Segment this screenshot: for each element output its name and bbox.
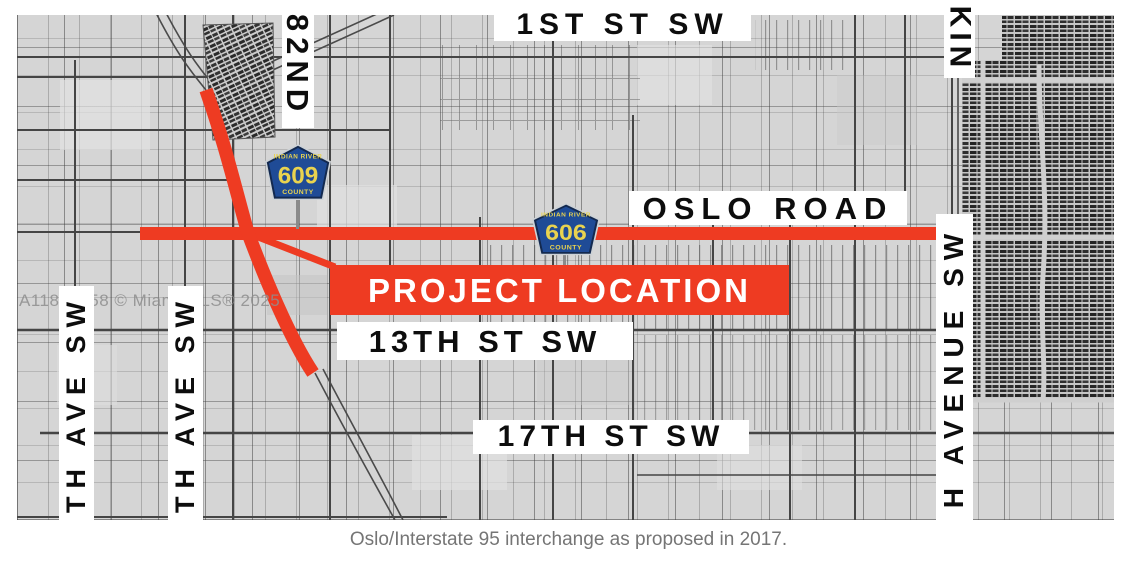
- project-location-callout: PROJECT LOCATION: [330, 265, 789, 315]
- street-label-text: OSLO ROAD: [643, 193, 894, 224]
- county-pentagon-icon: INDIAN RIVER 606 COUNTY: [530, 202, 602, 256]
- shield-bottom-text: COUNTY: [282, 189, 314, 196]
- street-label-text: TH AVE SW: [172, 294, 199, 513]
- street-label-th-ave-sw-east: TH AVE SW: [168, 286, 203, 520]
- street-label-17th-st-sw: 17TH ST SW: [473, 420, 749, 454]
- shield-top-text: INDIAN RIVER: [541, 212, 591, 219]
- street-label-13th-st-sw: 13TH ST SW: [337, 322, 633, 360]
- street-label-text: KIN: [945, 6, 975, 73]
- dense-subdivisions: [962, 15, 1114, 400]
- street-label-text: 1ST ST SW: [516, 10, 728, 40]
- street-label-kings-hwy: KIN: [944, 0, 975, 78]
- street-label-text: 17TH ST SW: [498, 422, 725, 452]
- street-label-text: 13TH ST SW: [369, 326, 602, 357]
- street-label-82nd-ave: 82ND: [282, 2, 314, 128]
- county-road-606-shield: INDIAN RIVER 606 COUNTY: [530, 202, 602, 256]
- street-label-th-ave-sw-west: TH AVE SW: [59, 286, 94, 520]
- project-location-text: PROJECT LOCATION: [368, 274, 751, 307]
- street-label-text: 82ND: [283, 13, 314, 116]
- street-label-1st-st-sw: 1ST ST SW: [494, 8, 751, 41]
- street-label-oslo-road: OSLO ROAD: [629, 191, 907, 225]
- shield-number: 609: [278, 163, 319, 190]
- listing-map-image: A11808958 © Miami MLS® 2025 INDIAN RIVER…: [0, 0, 1137, 571]
- shield-number: 606: [545, 220, 587, 246]
- street-label-text: TH AVE SW: [63, 294, 90, 513]
- shield-top-text: INDIAN RIVER: [274, 153, 323, 160]
- street-label-text: H AVENUE SW: [941, 226, 969, 508]
- image-caption: Oslo/Interstate 95 interchange as propos…: [0, 529, 1137, 551]
- county-road-609-shield: INDIAN RIVER 609 COUNTY: [263, 143, 333, 201]
- street-label-h-avenue-sw: H AVENUE SW: [936, 214, 973, 520]
- sign-post: [296, 198, 299, 229]
- county-pentagon-icon: INDIAN RIVER 609 COUNTY: [263, 143, 333, 201]
- shield-bottom-text: COUNTY: [550, 245, 583, 252]
